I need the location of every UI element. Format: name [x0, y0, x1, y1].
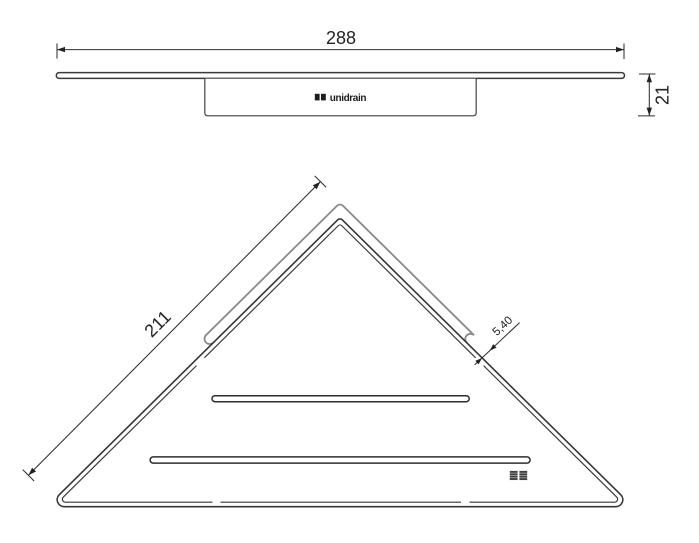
- svg-text:21: 21: [653, 85, 673, 105]
- svg-text:288: 288: [326, 28, 356, 48]
- svg-text:unidrain: unidrain: [330, 93, 367, 104]
